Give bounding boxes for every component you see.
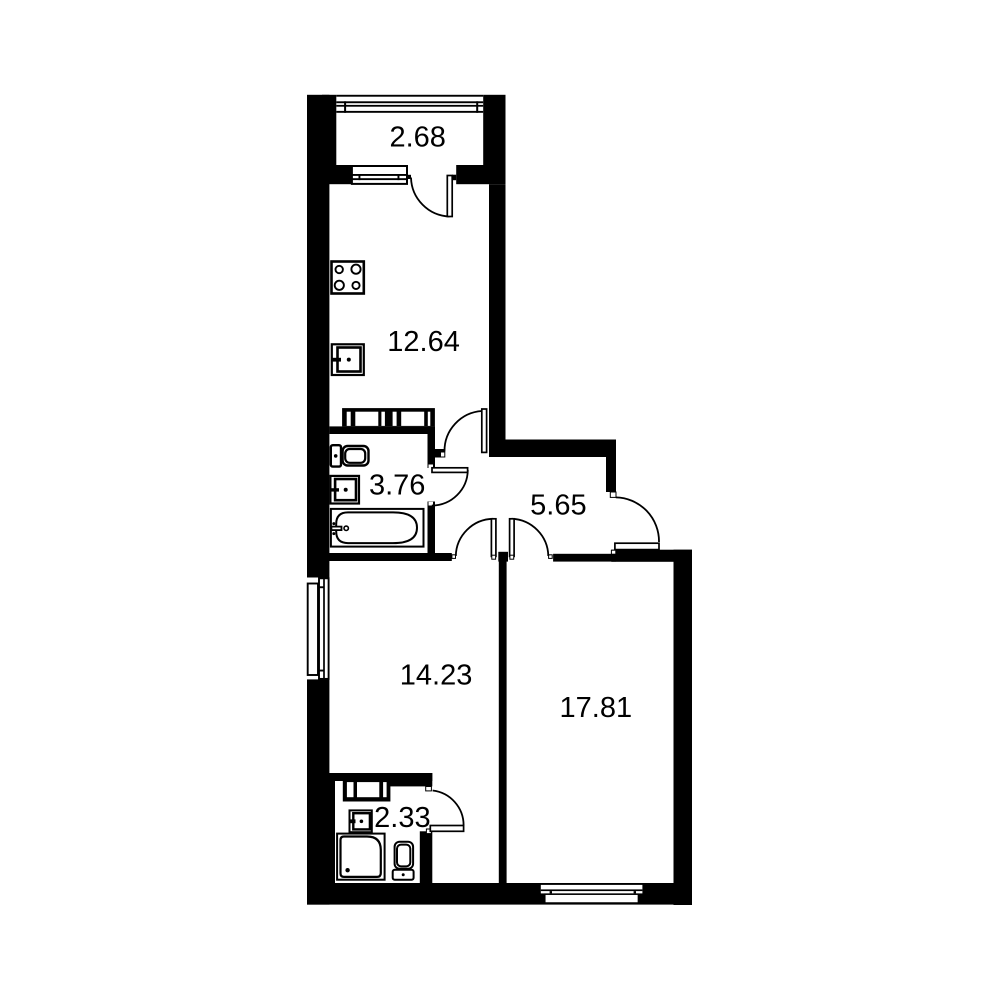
svg-text:14.23: 14.23 [400, 660, 473, 692]
svg-text:3.76: 3.76 [369, 469, 425, 501]
svg-text:2.33: 2.33 [374, 802, 430, 834]
svg-text:2.68: 2.68 [389, 122, 445, 154]
svg-text:17.81: 17.81 [560, 692, 633, 724]
svg-text:5.65: 5.65 [530, 489, 586, 521]
svg-text:12.64: 12.64 [387, 326, 460, 358]
